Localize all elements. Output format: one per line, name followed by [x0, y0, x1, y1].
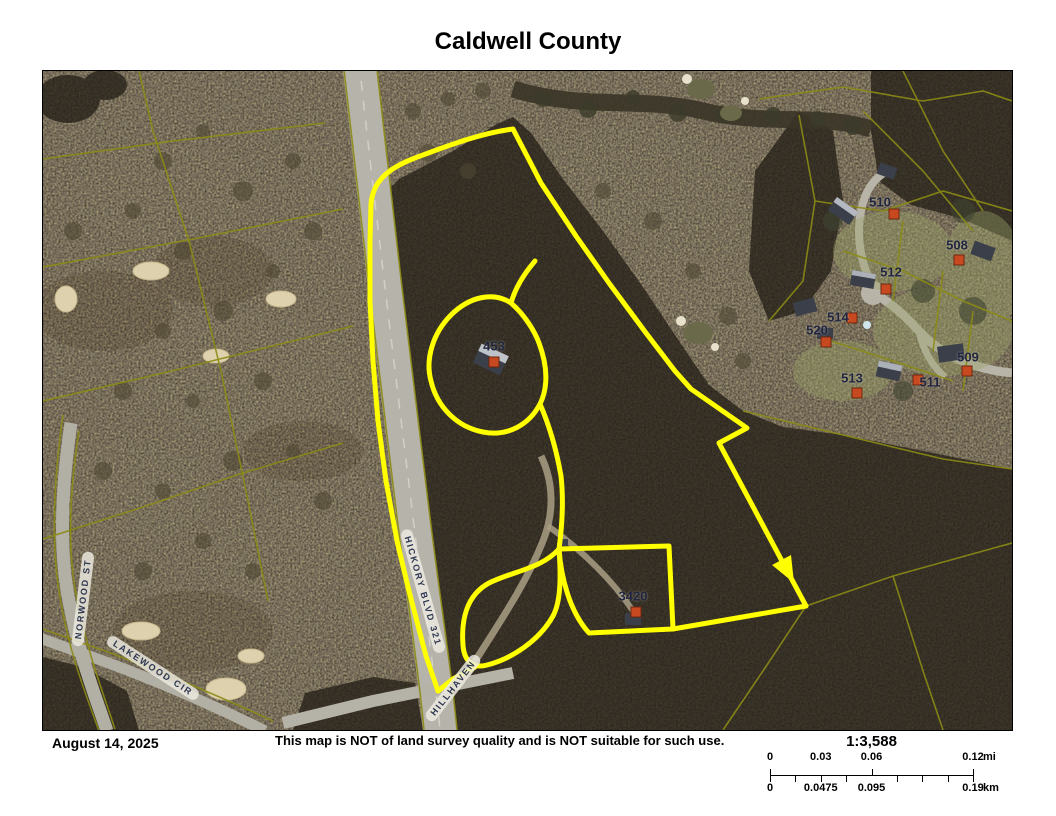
parcel-marker-520 — [821, 337, 832, 348]
scale-km-labels: 00.04750.0950.19km — [770, 782, 973, 794]
parcel-label-520: 520 — [806, 323, 828, 338]
scale-ratio: 1:3,588 — [770, 733, 973, 750]
parcel-label-512: 512 — [880, 265, 902, 280]
scale-unit: km — [983, 782, 999, 794]
parcel-label-509: 509 — [957, 350, 979, 365]
street-label-hickory-blvd-321: HICKORY BLVD 321 — [400, 528, 447, 654]
map-date: August 14, 2025 — [52, 735, 159, 751]
scale-tick — [795, 775, 796, 782]
scale-value: 0.095 — [858, 782, 886, 794]
map-label-overlay: HICKORY BLVD 321NORWOOD STLAKEWOOD CIRHI… — [43, 71, 1012, 730]
parcel-label-511: 511 — [920, 375, 941, 390]
page-title: Caldwell County — [0, 28, 1056, 56]
parcel-label-513: 513 — [841, 371, 863, 386]
street-label-norwood-st: NORWOOD ST — [71, 551, 94, 647]
parcel-marker-510 — [889, 209, 900, 220]
parcel-marker-508 — [954, 255, 965, 266]
scale-bar: 1:3,588 00.030.060.12mi 00.04750.0950.19… — [770, 733, 973, 803]
scale-value: 0.03 — [810, 751, 831, 763]
parcel-marker-513 — [852, 388, 863, 399]
map-canvas: HICKORY BLVD 321NORWOOD STLAKEWOOD CIRHI… — [42, 70, 1013, 731]
scale-value: 0.12 — [962, 751, 983, 763]
map-disclaimer: This map is NOT of land survey quality a… — [275, 733, 724, 748]
scale-value: 0.19 — [962, 782, 983, 794]
scale-tick — [948, 775, 949, 782]
parcel-label-508: 508 — [946, 238, 968, 253]
parcel-marker-3420 — [631, 607, 642, 618]
parcel-marker-512 — [881, 284, 892, 295]
scale-miles-labels: 00.030.060.12mi — [770, 751, 973, 763]
parcel-marker-509 — [962, 366, 973, 377]
scale-value: 0 — [767, 751, 773, 763]
parcel-label-3420: 3420 — [619, 589, 648, 604]
street-label-lakewood-cir: LAKEWOOD CIR — [105, 634, 201, 702]
parcel-label-453: 453 — [483, 339, 505, 354]
scale-tick — [770, 769, 771, 782]
parcel-label-506: 506 — [1011, 246, 1013, 261]
scale-value: 0 — [767, 782, 773, 794]
scale-tick — [897, 775, 898, 782]
parcel-label-510: 510 — [869, 195, 891, 210]
street-label-hillhaven: HILLHAVEN — [423, 652, 482, 723]
scale-tick — [973, 769, 974, 782]
scale-value: 0.0475 — [804, 782, 838, 794]
scale-tick — [922, 775, 923, 782]
scale-unit: mi — [983, 751, 996, 763]
parcel-marker-453 — [489, 357, 500, 368]
scale-tick — [821, 775, 822, 782]
scale-tick — [872, 769, 873, 776]
scale-value: 0.06 — [861, 751, 882, 763]
scale-tick — [846, 775, 847, 782]
parcel-label-514: 514 — [827, 310, 849, 325]
